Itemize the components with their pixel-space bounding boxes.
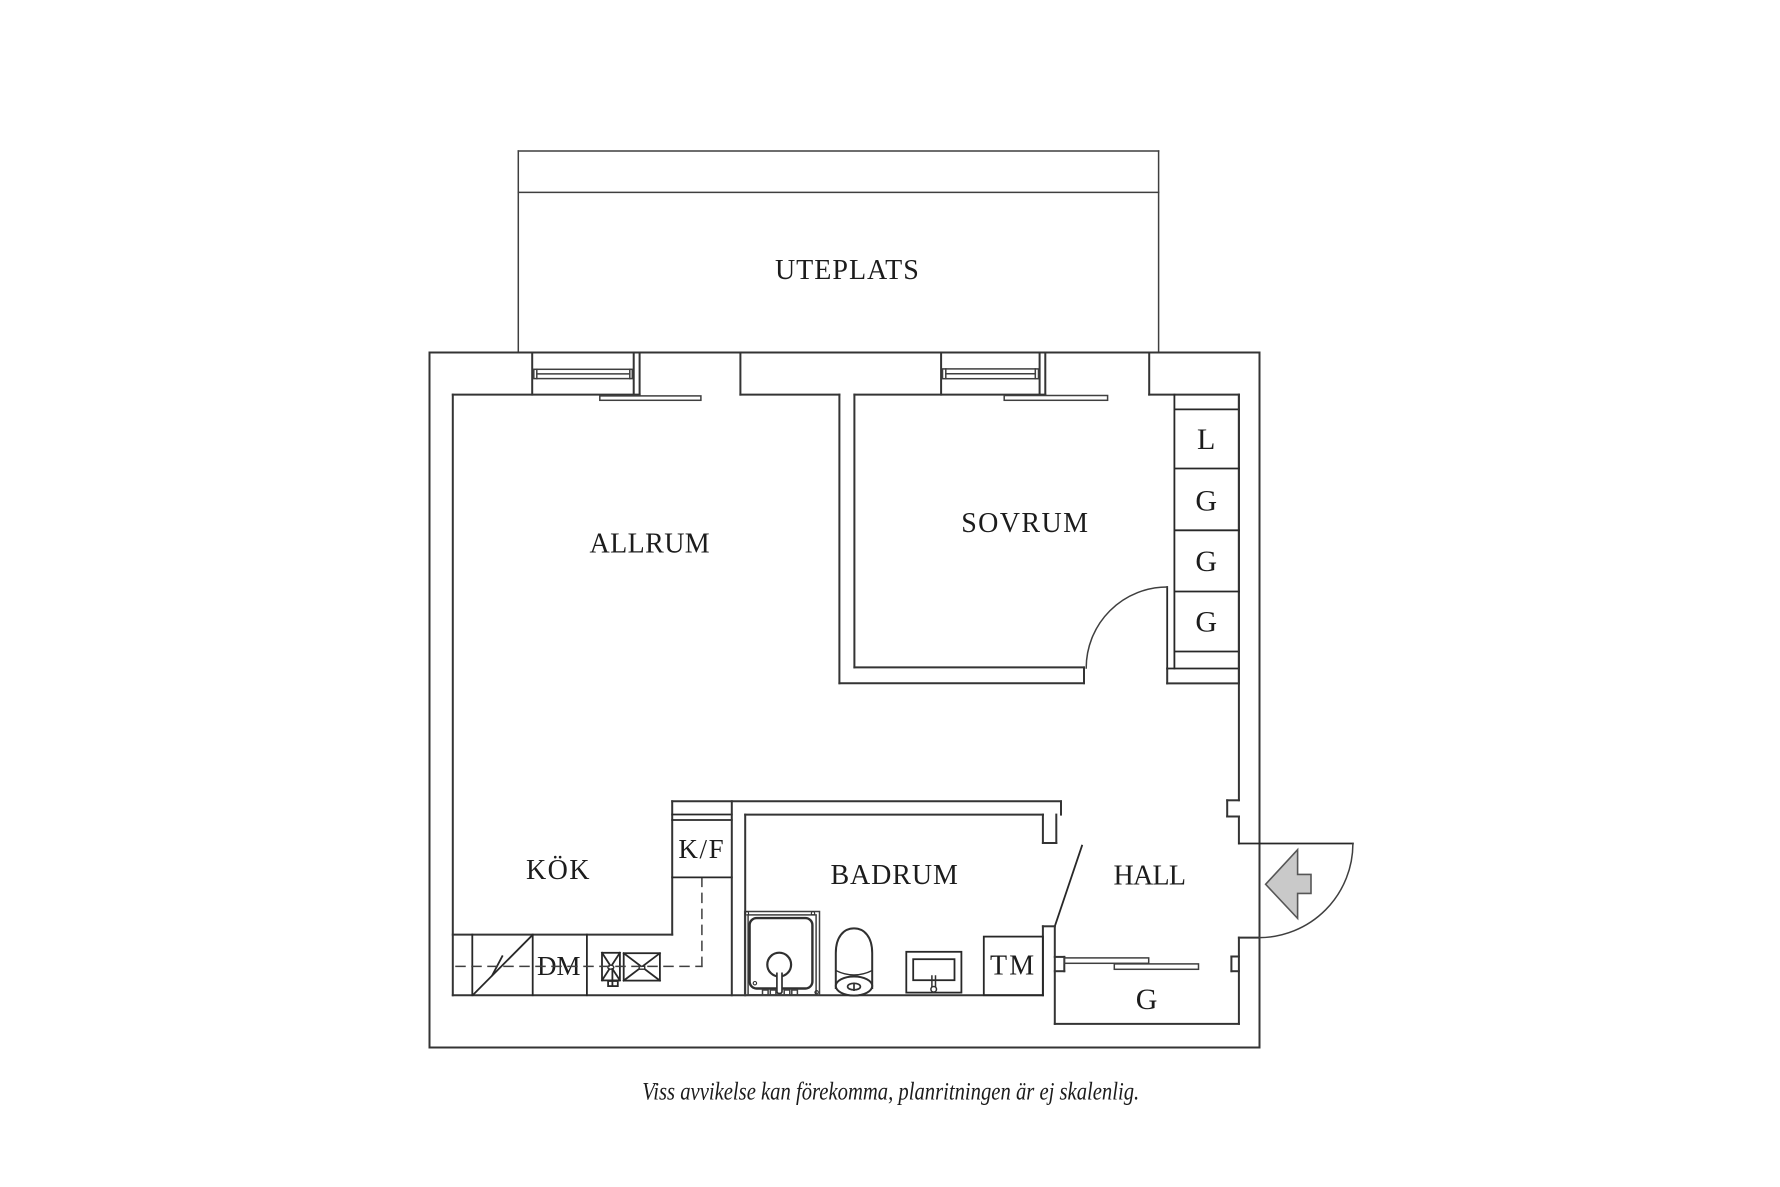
svg-text:G: G — [1195, 605, 1217, 638]
svg-text:TM: TM — [990, 951, 1036, 982]
svg-text:HALL: HALL — [1113, 861, 1185, 892]
svg-text:ALLRUM: ALLRUM — [589, 528, 710, 559]
svg-text:G: G — [1136, 983, 1158, 1016]
svg-text:Viss avvikelse kan förekomma,: Viss avvikelse kan förekomma, planritnin… — [642, 1078, 1139, 1105]
svg-text:G: G — [1195, 484, 1217, 517]
svg-text:L: L — [1197, 423, 1215, 456]
svg-text:UTEPLATS: UTEPLATS — [775, 255, 920, 286]
svg-text:BADRUM: BADRUM — [830, 860, 958, 891]
svg-text:G: G — [1195, 545, 1217, 578]
svg-text:K/F: K/F — [678, 834, 725, 864]
svg-text:KÖK: KÖK — [526, 855, 591, 886]
svg-text:SOVRUM: SOVRUM — [961, 508, 1089, 539]
